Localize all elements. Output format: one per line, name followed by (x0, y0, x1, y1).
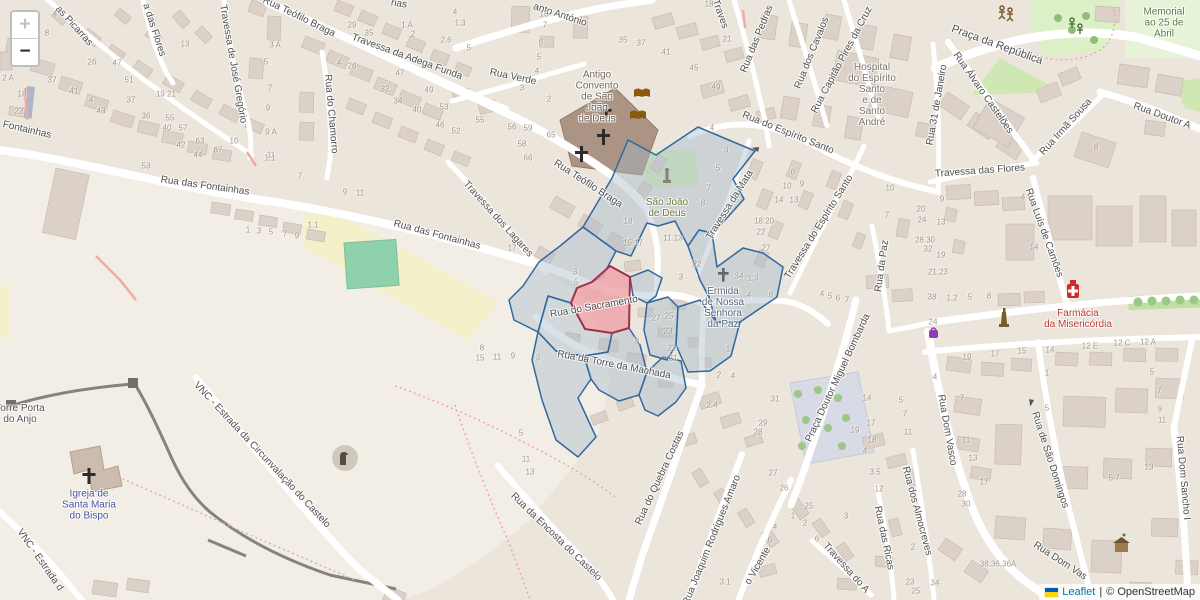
gate-icon (332, 445, 358, 471)
map-tiles (0, 0, 1200, 600)
ukraine-flag-icon (1045, 588, 1058, 597)
osm-attribution: © OpenStreetMap (1106, 586, 1195, 598)
overlay-polygon[interactable] (644, 297, 678, 360)
zoom-out-button[interactable]: − (12, 39, 38, 65)
attribution-separator: | (1099, 586, 1102, 598)
leaflet-link[interactable]: Leaflet (1062, 586, 1095, 598)
leaflet-map[interactable]: Fontainhasas Picarrasa das FloresTravess… (0, 0, 1200, 600)
castle-tower-icon (6, 400, 16, 410)
castle-tower-icon (128, 378, 138, 388)
zoom-control: + − (10, 10, 40, 67)
zoom-in-button[interactable]: + (12, 12, 38, 39)
attribution-bar: Leaflet | © OpenStreetMap (1039, 584, 1200, 600)
